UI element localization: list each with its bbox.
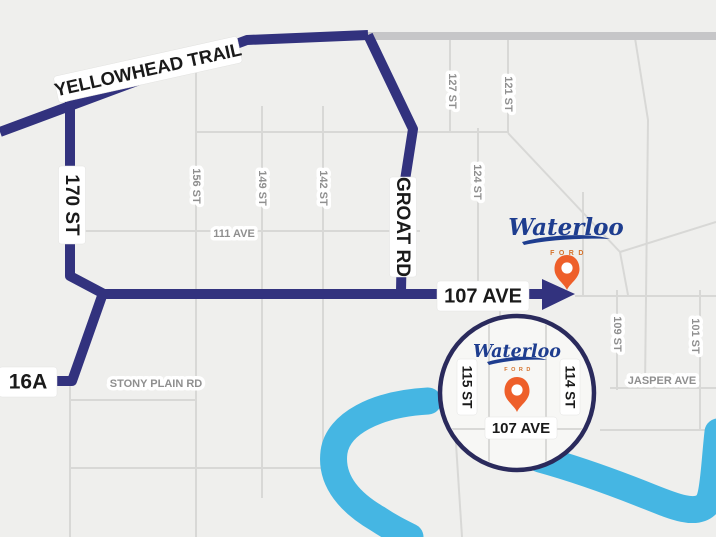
- 107-ave-label: 107 AVE: [437, 281, 529, 311]
- street-label-124-st: 124 ST: [471, 164, 483, 200]
- svg-text:114 ST: 114 ST: [562, 366, 577, 410]
- inset-107-ave-label: 107 AVE: [485, 417, 557, 439]
- svg-text:107 AVE: 107 AVE: [492, 420, 550, 437]
- inset-115-st-label: 115 ST: [457, 359, 477, 415]
- inset-zoom-circle: 115 ST 114 ST 107 AVE Waterloo FORD: [440, 316, 596, 470]
- svg-text:115 ST: 115 ST: [459, 366, 474, 410]
- svg-text:16A: 16A: [9, 371, 48, 394]
- street-label-156-st: 156 ST: [190, 168, 202, 204]
- street-label-127-st: 127 ST: [446, 73, 458, 109]
- svg-text:170 ST: 170 ST: [61, 174, 82, 236]
- inset-114-st-label: 114 ST: [560, 359, 580, 415]
- street-label-101-st: 101 ST: [689, 318, 701, 354]
- street-label-stony-plain-rd: STONY PLAIN RD: [110, 378, 203, 390]
- inset-waterloo-logo-sub-text: FORD: [504, 367, 534, 373]
- map-canvas: 156 ST 149 ST 142 ST 127 ST 121 ST 124 S…: [0, 0, 716, 537]
- street-label-149-st: 149 ST: [256, 170, 268, 206]
- groat-rd-label: GROAT RD: [390, 177, 417, 277]
- svg-text:107 AVE: 107 AVE: [444, 285, 522, 307]
- street-label-111-ave: 111 AVE: [213, 228, 255, 240]
- street-label-142-st: 142 ST: [317, 170, 329, 206]
- street-label-109-st: 109 ST: [611, 316, 623, 352]
- 16a-label: 16A: [0, 367, 57, 397]
- svg-text:GROAT RD: GROAT RD: [392, 177, 413, 277]
- waterloo-ford-map: 156 ST 149 ST 142 ST 127 ST 121 ST 124 S…: [0, 0, 716, 537]
- street-label-jasper-ave: JASPER AVE: [628, 375, 696, 387]
- street-label-121-st: 121 ST: [502, 76, 514, 112]
- 170-st-label: 170 ST: [59, 166, 86, 244]
